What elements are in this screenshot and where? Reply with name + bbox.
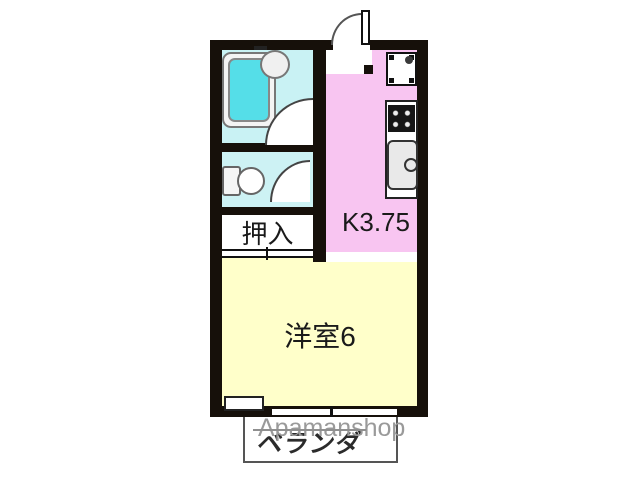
- wash-basin-icon: [260, 50, 290, 79]
- kitchen-label: K3.75: [330, 206, 422, 238]
- wall-bath-kitchen: [313, 50, 326, 262]
- kitchen-mainroom-opening: [326, 252, 417, 262]
- watermark-underline: [253, 429, 366, 431]
- kitchen-sink-drain-icon: [404, 158, 418, 172]
- low-cabinet: [224, 396, 264, 411]
- toilet-bowl-icon: [237, 167, 265, 195]
- faucet-icon: [254, 46, 267, 50]
- drain-icon: [405, 56, 413, 64]
- entry-door-leaf: [361, 10, 370, 45]
- floor-plan-canvas: 押入 K3.75 洋室6 ベランダ Apamanshop: [0, 0, 640, 477]
- stove-icon: [388, 105, 415, 132]
- entry-wall-stub: [364, 65, 373, 74]
- washing-machine-pan-icon: [386, 52, 417, 86]
- main-room-label: 洋室6: [250, 318, 390, 352]
- wall-top-left-segment: [210, 40, 333, 50]
- wall-left: [210, 40, 222, 417]
- closet-label: 押入: [222, 215, 313, 249]
- entry-door-swing-arc: [331, 13, 362, 45]
